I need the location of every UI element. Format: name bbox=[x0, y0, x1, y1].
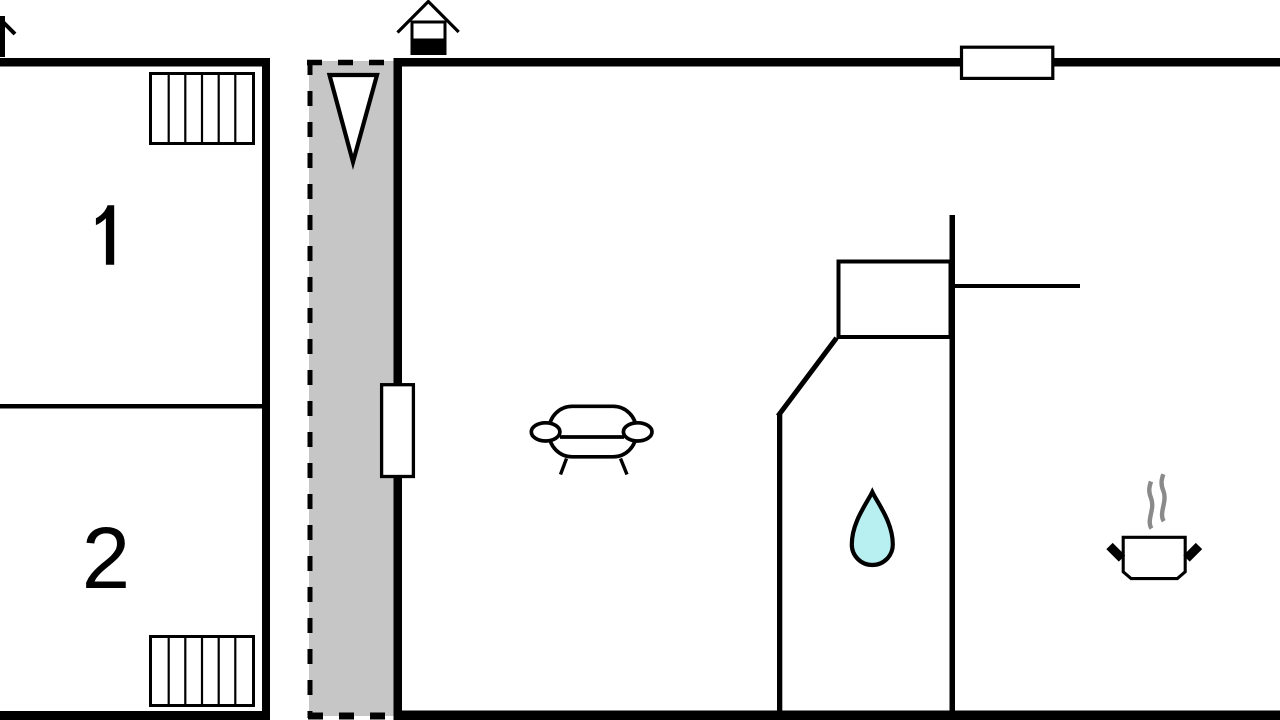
svg-text:2: 2 bbox=[82, 510, 130, 607]
